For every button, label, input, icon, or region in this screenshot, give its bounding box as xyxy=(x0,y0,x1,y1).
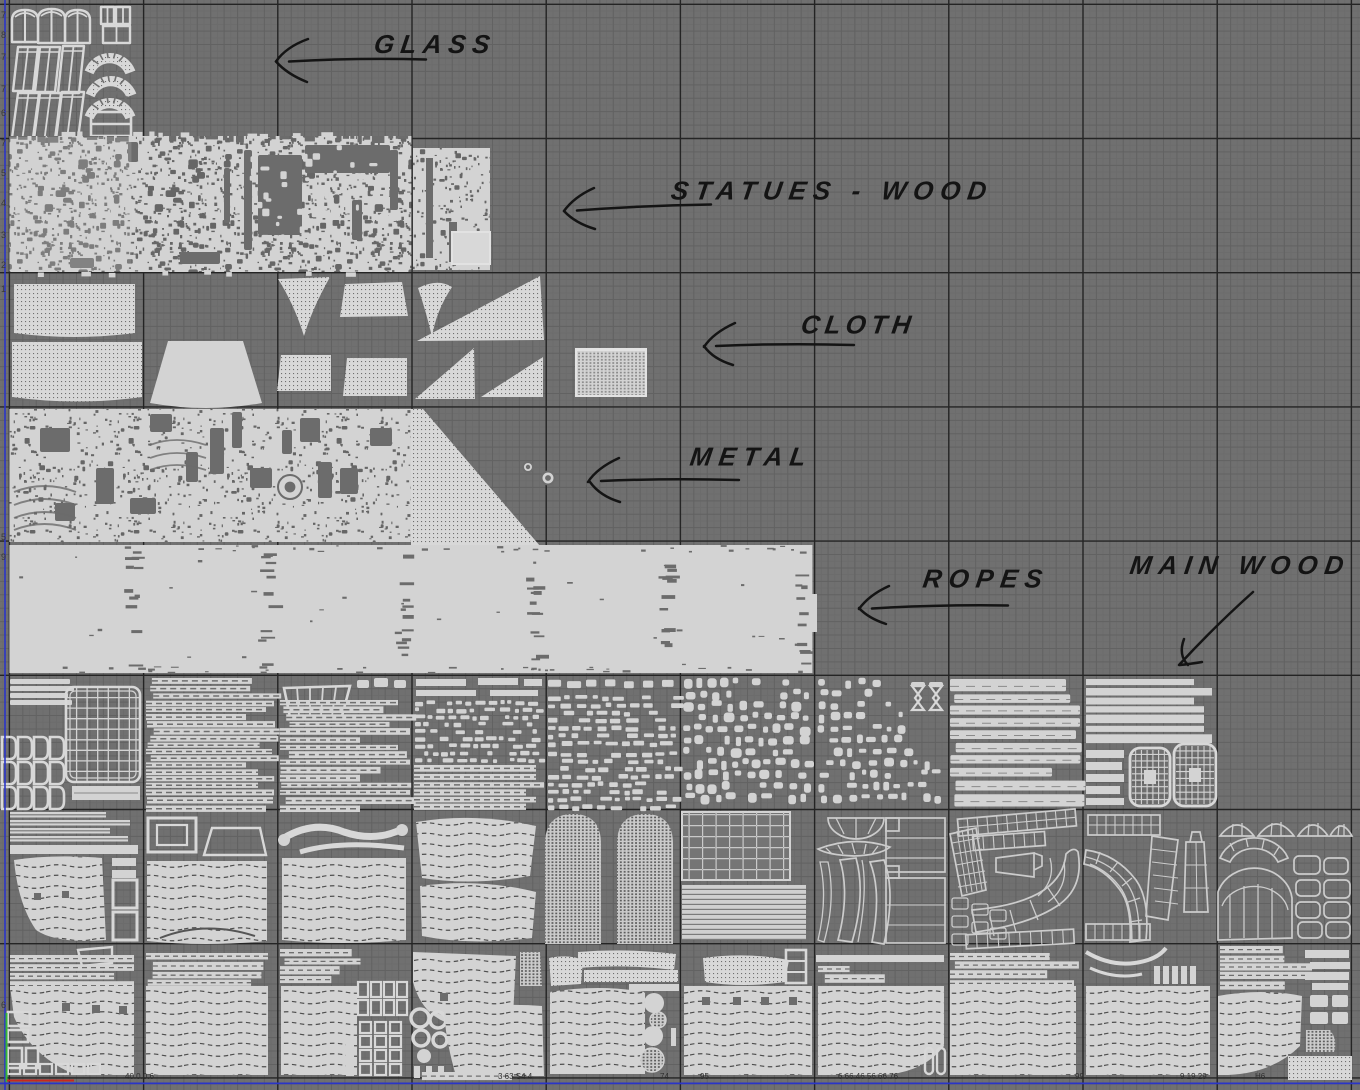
svg-text:5: 5 xyxy=(1,532,6,542)
svg-text:3: 3 xyxy=(1,230,6,240)
svg-text:3 63 S4 4: 3 63 S4 4 xyxy=(498,1072,533,1081)
svg-text:9: 9 xyxy=(1,552,6,562)
svg-text:4: 4 xyxy=(1,198,6,208)
svg-text:H6: H6 xyxy=(1255,1072,1266,1081)
svg-text:2: 2 xyxy=(1,260,6,270)
svg-text:1: 1 xyxy=(1,284,6,294)
svg-text:99: 99 xyxy=(1075,1072,1084,1081)
svg-text:7: 7 xyxy=(1,10,6,20)
svg-text:5: 5 xyxy=(1,168,6,178)
svg-text:MAIN WOOD: MAIN WOOD xyxy=(1128,550,1353,580)
svg-text:METAL: METAL xyxy=(688,442,815,472)
svg-text:8: 8 xyxy=(1,30,6,40)
svg-text:7: 7 xyxy=(1,52,6,62)
svg-text:6: 6 xyxy=(1,1000,6,1010)
svg-text:7: 7 xyxy=(1,138,6,148)
svg-text:7: 7 xyxy=(1,84,6,94)
svg-text:6 66 46 56 66 76: 6 66 46 56 66 76 xyxy=(838,1072,899,1081)
svg-text:6: 6 xyxy=(1,108,6,118)
svg-text:STATUES - WOOD: STATUES - WOOD xyxy=(669,176,995,206)
svg-text:74: 74 xyxy=(660,1072,669,1081)
svg-text:40.0.0.6: 40.0.0.6 xyxy=(125,1072,154,1081)
svg-text:9 19 29: 9 19 29 xyxy=(1180,1072,1207,1081)
svg-text:CLOTH: CLOTH xyxy=(799,310,918,340)
svg-text:95: 95 xyxy=(700,1072,709,1081)
svg-text:ROPES: ROPES xyxy=(921,564,1051,594)
svg-text:GLASS: GLASS xyxy=(372,29,498,59)
